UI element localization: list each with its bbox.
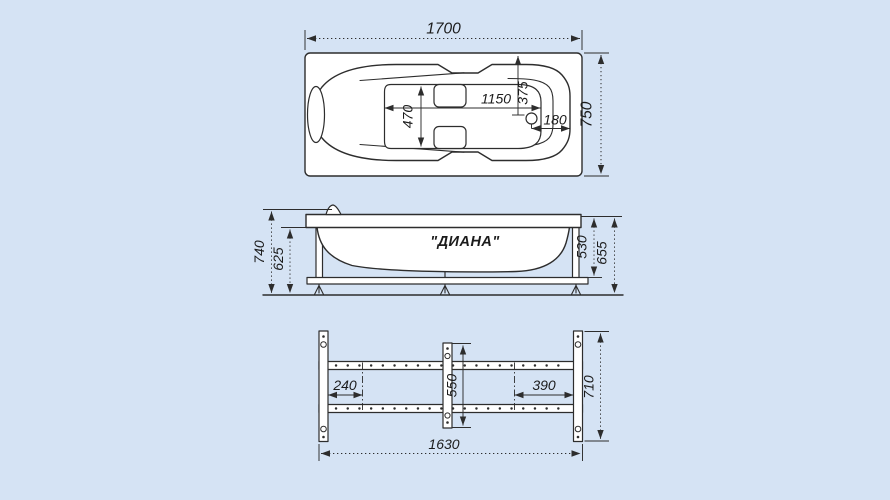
dim-label-750: 750 xyxy=(579,101,596,127)
tub-rim-side xyxy=(306,215,581,228)
frame-bottom-rail xyxy=(307,278,588,285)
drain-hole xyxy=(526,113,537,124)
dim-1630: 1630 xyxy=(319,436,583,461)
dim-label-710: 710 xyxy=(581,375,597,399)
dim-label-180: 180 xyxy=(543,112,567,128)
frame-view: 240 390 550 1630 710 xyxy=(319,331,609,461)
headrest xyxy=(308,87,325,143)
dim-label-390: 390 xyxy=(532,377,556,393)
bathtub-technical-drawing: 1700 750 1150 470 375 180 xyxy=(0,0,890,500)
grip-handle-top xyxy=(434,85,466,108)
dim-390: 390 xyxy=(515,377,574,395)
dim-label-655: 655 xyxy=(594,241,610,265)
dim-label-470: 470 xyxy=(400,105,416,129)
dim-710: 710 xyxy=(581,332,610,442)
model-name-label: "ДИАНА" xyxy=(430,234,500,250)
dim-label-530: 530 xyxy=(574,235,590,259)
dim-655: 655 xyxy=(594,219,615,294)
dim-label-550: 550 xyxy=(444,374,460,398)
dim-label-240: 240 xyxy=(332,377,357,393)
dim-label-1630: 1630 xyxy=(428,436,459,452)
grip-handle-bottom xyxy=(434,127,466,149)
top-view: 1700 750 1150 470 375 180 xyxy=(305,21,609,177)
foot-right xyxy=(572,284,581,295)
side-view: "ДИАНА" 740 625 530 655 xyxy=(251,205,623,295)
drawing-canvas: 1700 750 1150 470 375 180 xyxy=(0,0,890,500)
dim-label-1700: 1700 xyxy=(426,21,461,38)
dim-label-1150: 1150 xyxy=(481,91,511,107)
dim-label-740: 740 xyxy=(251,240,267,264)
foot-left xyxy=(315,284,324,295)
dim-625: 625 xyxy=(270,228,306,294)
dim-750: 750 xyxy=(579,53,610,176)
dim-240: 240 xyxy=(328,377,363,395)
dim-1700: 1700 xyxy=(305,21,582,51)
dim-label-375: 375 xyxy=(515,81,531,105)
dim-label-625: 625 xyxy=(270,247,286,271)
